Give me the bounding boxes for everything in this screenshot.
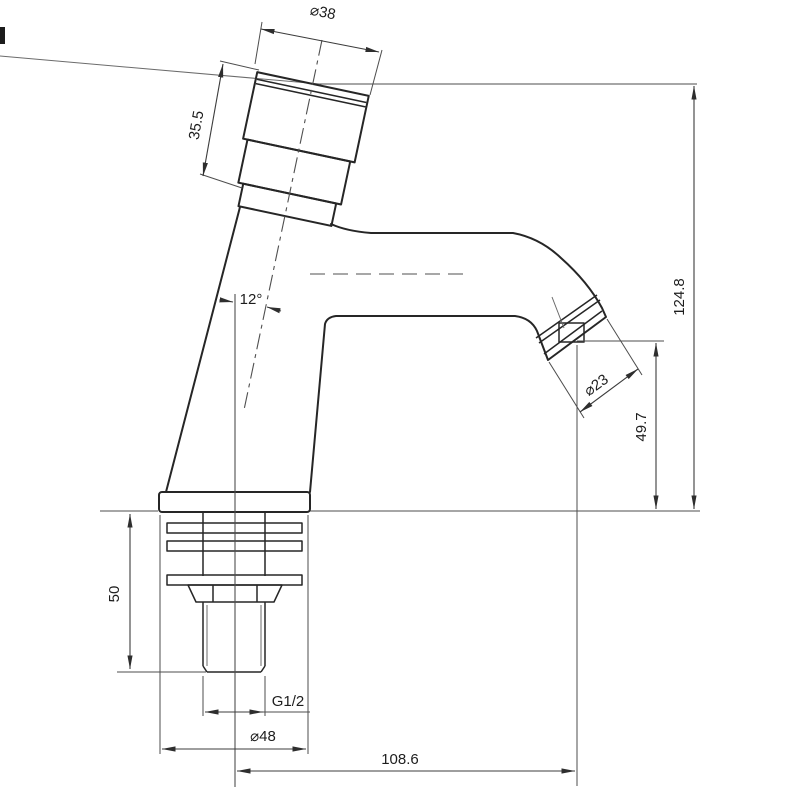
dia23-extension-right <box>607 319 642 375</box>
pipe-chamfer-right <box>261 666 265 672</box>
top-construction-line <box>0 56 320 84</box>
dia38-label: ⌀38 <box>309 2 337 24</box>
handle-cap-chamfer-line-2 <box>256 84 366 107</box>
angle-arrow-left <box>221 300 233 302</box>
dia23-label: ⌀23 <box>581 371 612 400</box>
pipe-chamfer-left <box>203 666 207 672</box>
aerator-ring-line-2 <box>539 300 600 343</box>
dia38-extension-right <box>370 50 382 95</box>
overall-height-label: 124.8 <box>671 278 688 316</box>
technical-drawing-page: ⌀38 35.5 12° 124.8 49.7 ⌀23 50 G1/2 ⌀48 … <box>0 0 800 800</box>
handle-cap <box>243 72 369 162</box>
spout-outline <box>310 224 606 492</box>
dia38-extension-left <box>255 22 262 64</box>
handle-neck <box>238 184 336 226</box>
h355-extension-top <box>220 61 259 70</box>
outlet-height-label: 49.7 <box>633 412 650 441</box>
reach-label: 108.6 <box>381 751 419 768</box>
faucet-technical-drawing: ⌀38 35.5 12° 124.8 49.7 ⌀23 50 G1/2 ⌀48 … <box>0 0 800 800</box>
shank-label: 50 <box>106 586 123 603</box>
dia23-extension-left <box>549 362 584 418</box>
dia48-label: ⌀48 <box>250 728 276 745</box>
angle-arrow-right <box>267 307 281 311</box>
h355-extension-bottom <box>200 174 242 188</box>
angle-label: 12° <box>240 291 263 308</box>
body-left-edge <box>166 207 240 492</box>
h355-label: 35.5 <box>186 109 208 141</box>
thread-label: G1/2 <box>272 693 305 710</box>
scan-artifact <box>0 27 5 44</box>
